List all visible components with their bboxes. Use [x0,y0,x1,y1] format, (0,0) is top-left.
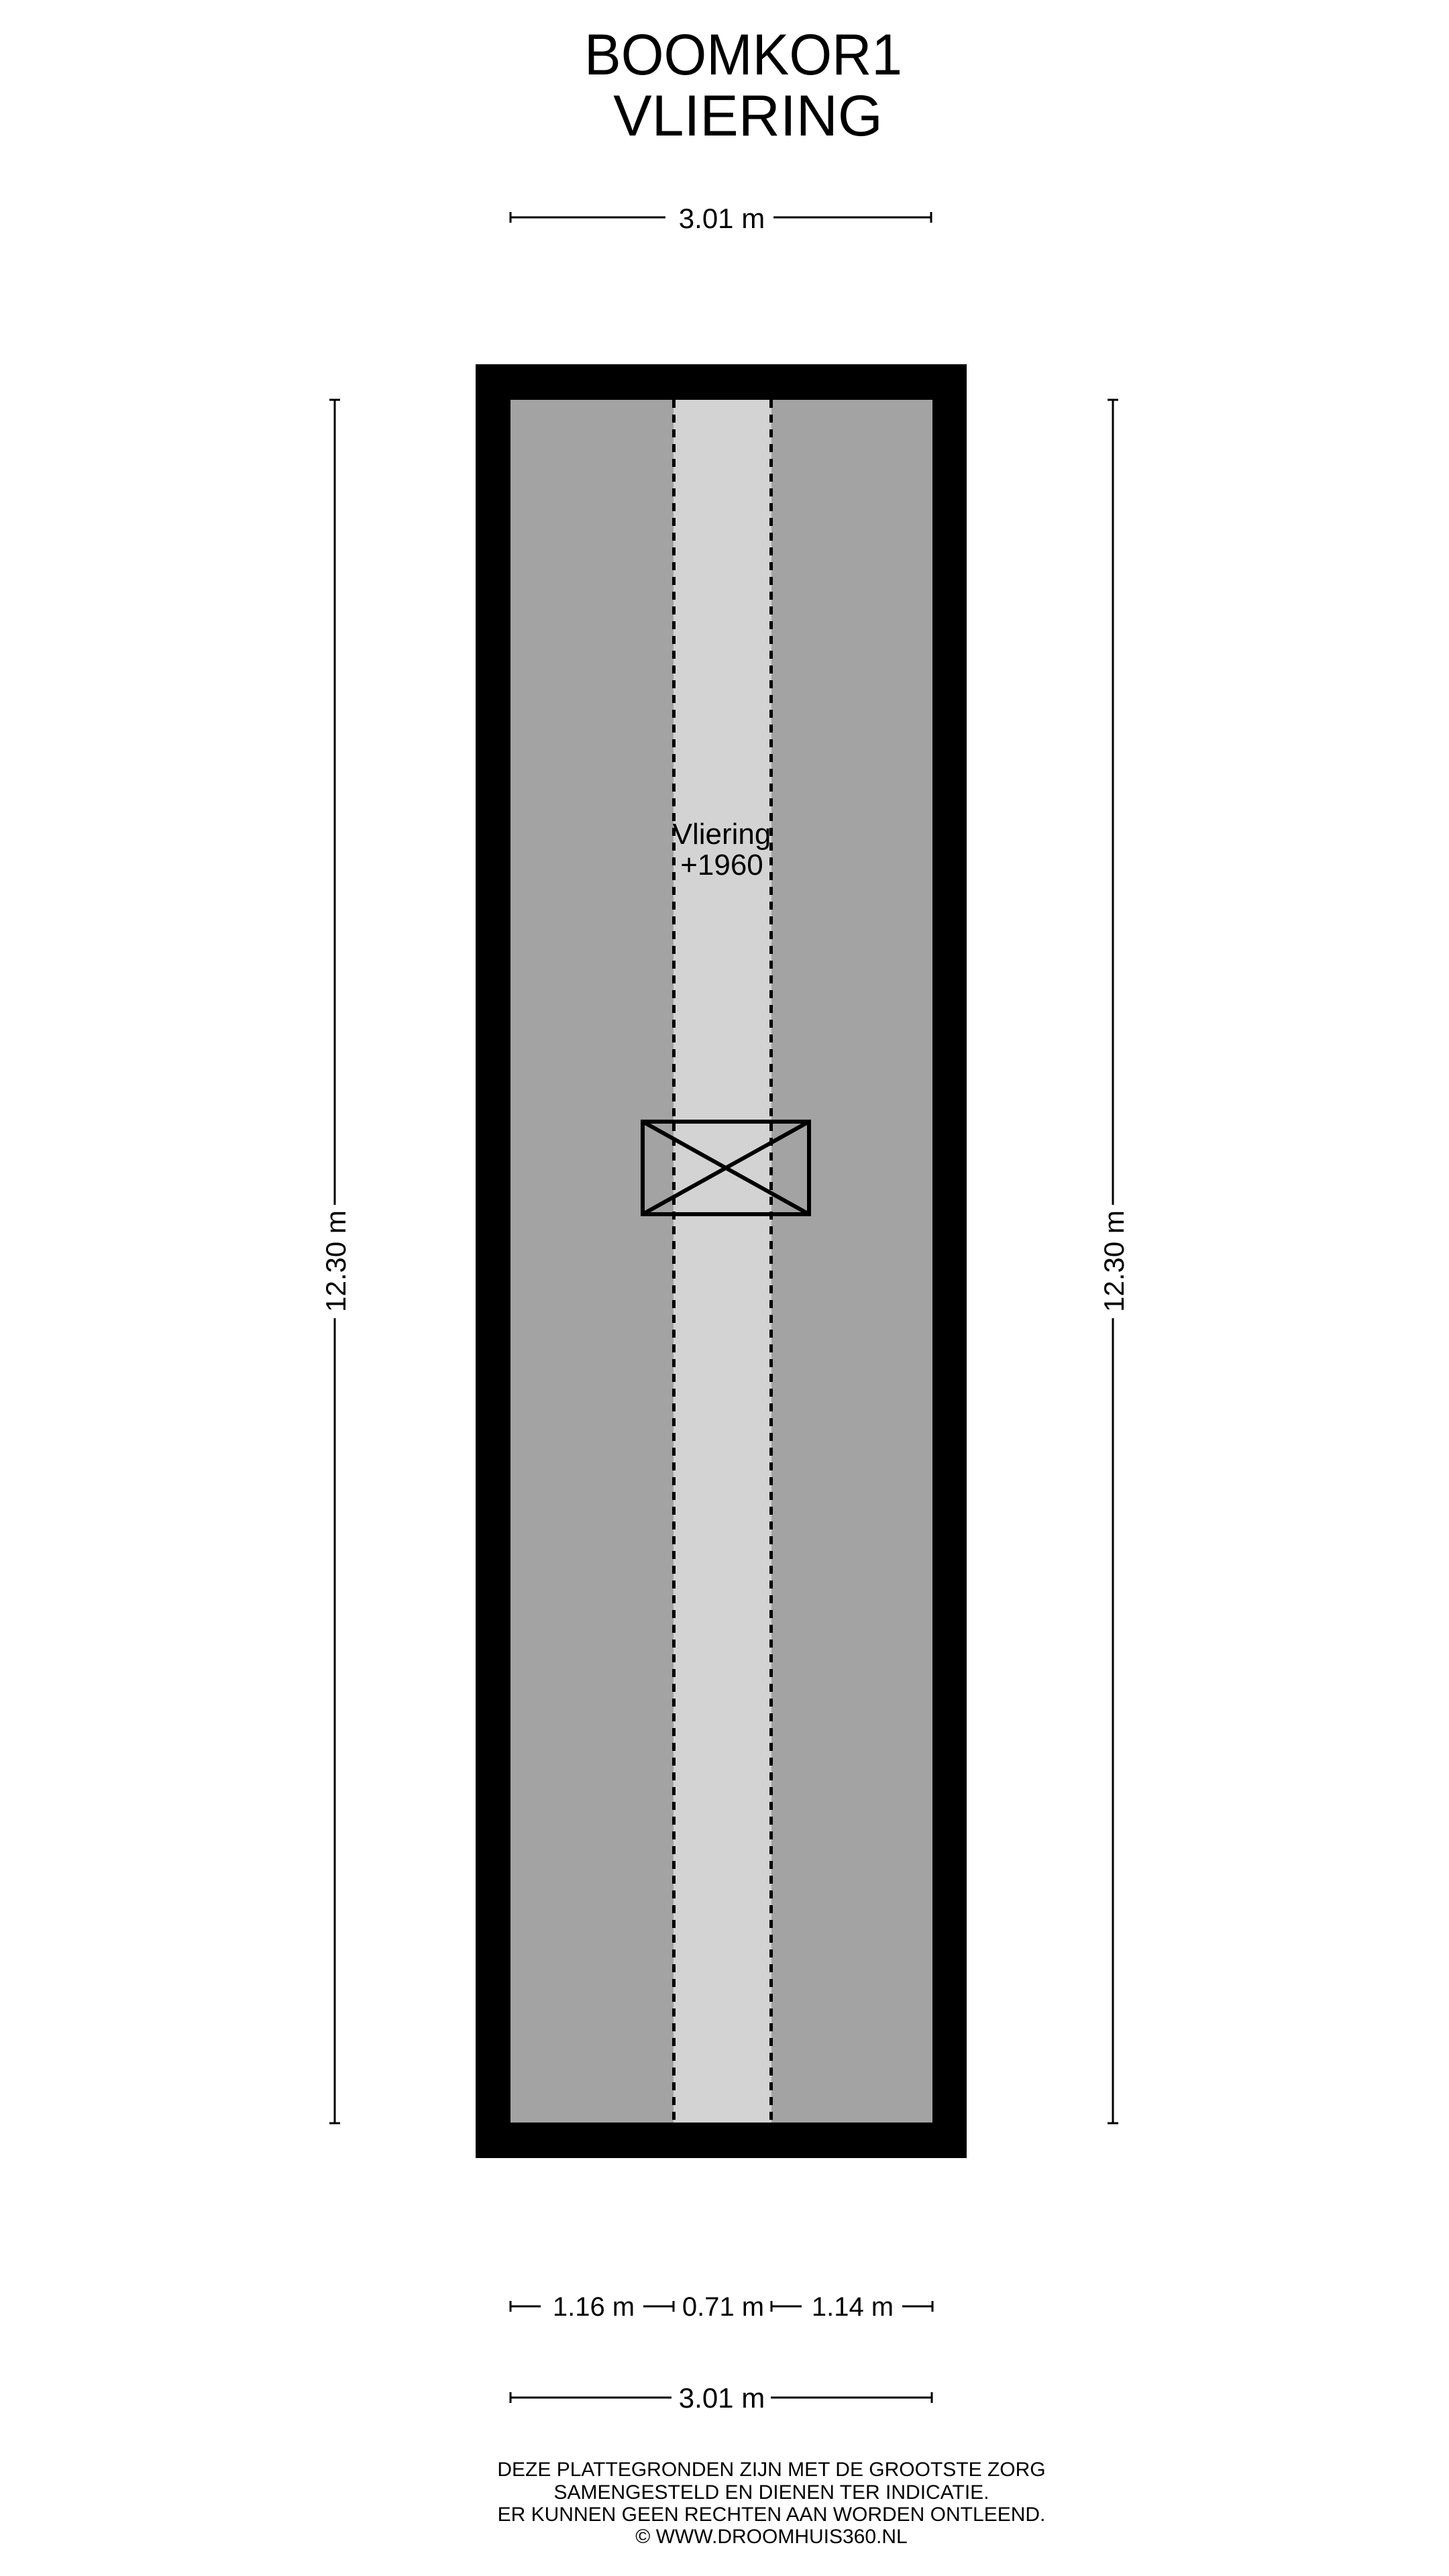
svg-text:0.71 m: 0.71 m [682,2292,764,2322]
svg-text:12.30 m: 12.30 m [1098,1210,1130,1312]
svg-text:BOOMKOR1: BOOMKOR1 [584,23,902,87]
svg-text:SAMENGESTELD EN DIENEN TER IND: SAMENGESTELD EN DIENEN TER INDICATIE. [554,2481,989,2504]
svg-text:1.16 m: 1.16 m [553,2292,635,2322]
svg-text:3.01 m: 3.01 m [679,203,765,234]
svg-text:VLIERING: VLIERING [613,84,882,148]
svg-text:3.01 m: 3.01 m [679,2382,765,2414]
svg-text:ER KUNNEN GEEN RECHTEN AAN WOR: ER KUNNEN GEEN RECHTEN AAN WORDEN ONTLEE… [498,2504,1046,2526]
svg-text:Vliering: Vliering [673,818,771,851]
svg-text:DEZE PLATTEGRONDEN ZIJN MET DE: DEZE PLATTEGRONDEN ZIJN MET DE GROOTSTE … [497,2459,1045,2481]
svg-text:+1960: +1960 [680,849,763,881]
svg-text:1.14 m: 1.14 m [812,2292,894,2322]
svg-text:© WWW.DROOMHUIS360.NL: © WWW.DROOMHUIS360.NL [635,2526,907,2548]
svg-text:12.30 m: 12.30 m [320,1210,352,1312]
